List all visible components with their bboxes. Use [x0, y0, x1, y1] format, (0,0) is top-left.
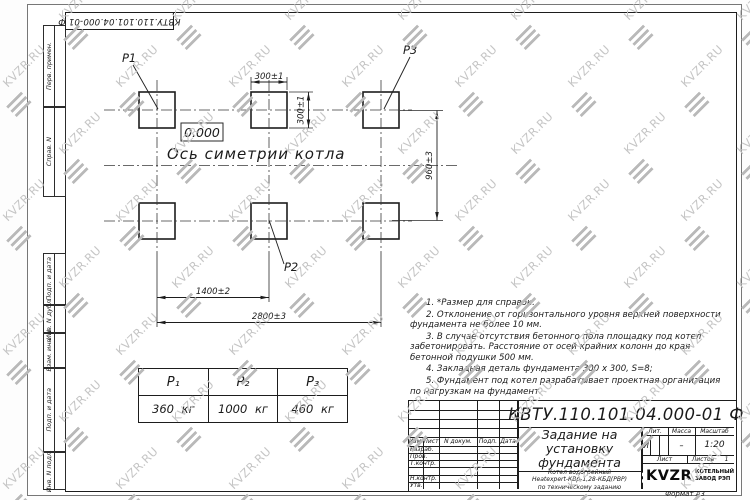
kvzr-logo-icon	[642, 470, 643, 483]
elevation-mark-value: 0.000	[184, 125, 220, 140]
lit-header: Лит.	[642, 427, 668, 435]
scale-value: 1:20	[695, 435, 734, 455]
load-table: P₁ P₂ P₃ 360 кг 1000 кг 460 кг	[138, 368, 348, 423]
mass-value: –	[668, 435, 695, 455]
format-label: Формат А3	[655, 490, 715, 498]
dim-pad-width: 300±1	[255, 72, 284, 82]
load-value-p3: 460 кг	[278, 396, 348, 423]
load-header-p1: P₁	[139, 369, 209, 396]
note-item: 2. Отклонение от горизонтального уровня …	[410, 310, 732, 331]
dim-pad-height: 300±1	[297, 96, 307, 125]
scale-header: Масштаб	[695, 427, 734, 435]
load-header-p2: P₂	[208, 369, 278, 396]
technical-notes: 1. *Размер для справок. 2. Отклонение от…	[410, 298, 732, 398]
load-value-p1: 360 кг	[139, 396, 209, 423]
col-header-podp: Подп.	[477, 437, 499, 446]
product-line: Котел водогрейный	[548, 469, 611, 476]
kvzr-logo-caption: КОТЕЛЬНЫЙ ЗАВОД РЭП	[695, 469, 734, 482]
note-item: 5. Фундамент под котел разрабатывает про…	[410, 376, 732, 397]
document-designation: КВТУ.110.101.04.000-01 Ф	[518, 401, 734, 427]
product-description: Котел водогрейный Heatexpert-КВр-1,28-КБ…	[518, 471, 641, 489]
lit-value: И	[642, 435, 650, 455]
col-header-data: Дата	[499, 437, 517, 446]
row-tkontr: Т.контр.	[410, 460, 439, 467]
load-table-header-row: P₁ P₂ P₃	[139, 369, 348, 396]
note-item: 1. *Размер для справок.	[410, 298, 732, 308]
logo-caption-line: ЗАВОД РЭП	[695, 476, 734, 483]
logo-caption-line: КОТЕЛЬНЫЙ	[695, 469, 734, 476]
note-item: 3. В случае отсутствия бетонного пола пл…	[410, 332, 732, 363]
drawing-sheet-page: Перв. примен. Справ. N Подп. и дата Инв.…	[0, 0, 750, 500]
point-label-p3: P3	[403, 43, 417, 57]
mass-header: Масса	[668, 427, 695, 435]
row-nkontr: Н.контр.	[410, 475, 439, 482]
point-label-p2: P2	[284, 260, 298, 274]
kvzr-logo-word: KVZR	[646, 468, 692, 484]
sheets-value: 1	[719, 455, 734, 463]
row-razrab: Разраб.	[410, 446, 439, 453]
load-value-p2: 1000 кг	[208, 396, 278, 423]
dim-col-spacing: 1400±2	[196, 287, 230, 297]
load-table-value-row: 360 кг 1000 кг 460 кг	[139, 396, 348, 423]
load-header-p3: P₃	[278, 369, 348, 396]
dim-row-spacing: 960±3	[425, 151, 435, 180]
dim-total-width: 2800±3	[252, 312, 286, 322]
title-block: Изм. Лист N докум. Подп. Дата Разраб. Пр…	[408, 400, 737, 492]
sheets-label: Листов	[687, 455, 719, 463]
symmetry-axis-label: Ось симетрии котла	[167, 145, 345, 163]
point-label-p1: P1	[122, 51, 136, 65]
row-utv: Утв.	[410, 482, 439, 489]
kvzr-logo: KVZR КОТЕЛЬНЫЙ ЗАВОД РЭП	[642, 463, 734, 489]
product-line: по техническому заданию	[538, 484, 621, 491]
col-header-list: Лист	[423, 437, 439, 446]
sheet-label: Лист	[642, 455, 687, 463]
col-header-izm: Изм.	[409, 437, 423, 446]
product-line: Heatexpert-КВр-1,28-КБД(РВР)	[532, 476, 627, 483]
row-prov: Пров.	[410, 453, 439, 460]
col-header-dokum: N докум.	[439, 437, 477, 446]
note-item: 4. Закладная деталь фундамента 300 х 300…	[410, 364, 732, 374]
document-title: Задание на установку фундамента	[518, 427, 641, 471]
